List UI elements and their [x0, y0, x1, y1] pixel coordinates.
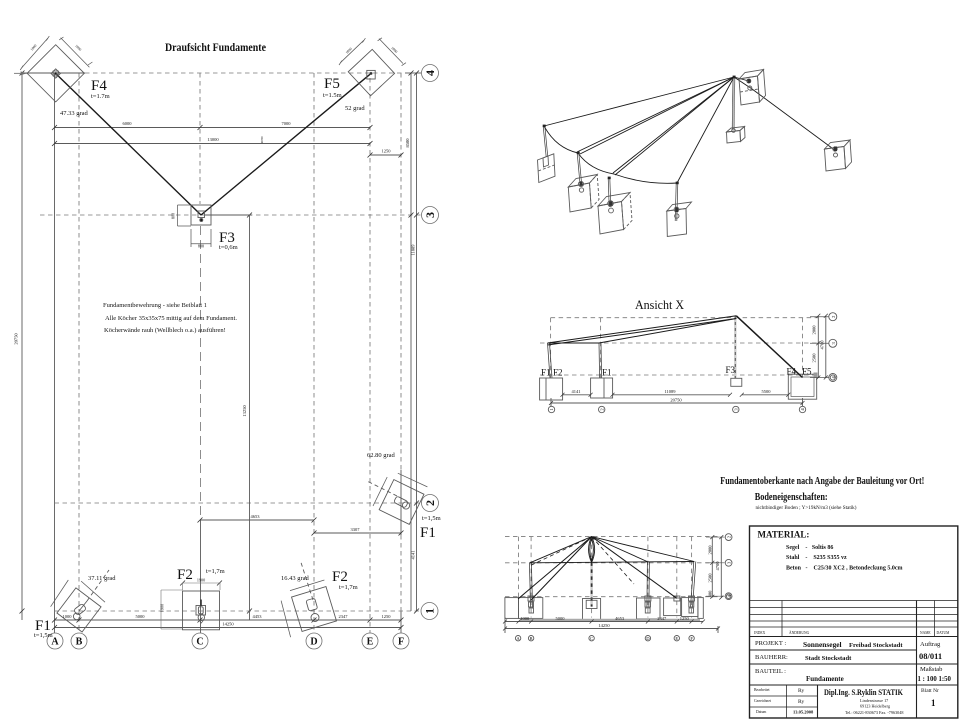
- svg-text:16.43 grad: 16.43 grad: [281, 575, 310, 582]
- svg-text:3: 3: [423, 212, 437, 218]
- svg-text:11089: 11089: [664, 389, 676, 394]
- svg-text:Stadt Stockstadt: Stadt Stockstadt: [805, 655, 852, 662]
- svg-text:DATUM: DATUM: [937, 631, 951, 635]
- svg-text:1250: 1250: [680, 616, 690, 621]
- svg-text:F4: F4: [787, 367, 797, 377]
- svg-text:4: 4: [423, 70, 437, 76]
- svg-text:1 : 100 1:50: 1 : 100 1:50: [918, 676, 952, 683]
- svg-text:Fundamentoberkante nach Angabe: Fundamentoberkante nach Angabe der Baule…: [720, 476, 924, 487]
- svg-text:4700: 4700: [715, 561, 720, 571]
- svg-text:Fundamentbewehrung - siehe Be: Fundamentbewehrung - siehe Beiblatt 1: [103, 302, 207, 309]
- svg-text:E: E: [367, 637, 374, 648]
- svg-text:4141: 4141: [411, 551, 416, 560]
- svg-text:F2: F2: [332, 569, 348, 585]
- svg-text:t=1,7m: t=1,7m: [206, 568, 225, 575]
- svg-text:4653: 4653: [615, 616, 625, 621]
- svg-text:4700: 4700: [820, 340, 825, 350]
- svg-text:800: 800: [198, 244, 204, 249]
- svg-text:INDEX: INDEX: [754, 631, 766, 635]
- svg-text:BAUHERR:: BAUHERR:: [755, 654, 788, 661]
- svg-text:t=1,5m: t=1,5m: [34, 632, 53, 639]
- svg-text:E: E: [675, 636, 678, 641]
- svg-text:nichtbindiger Boden ; Y>19kN/m: nichtbindiger Boden ; Y>19kN/m3 (siehe S…: [756, 504, 857, 511]
- svg-text:Tel.: 06221-830673 Fax. -796: Tel.: 06221-830673 Fax. -7963048: [845, 710, 903, 715]
- svg-text:C: C: [590, 636, 593, 641]
- svg-text:Ansicht X: Ansicht X: [635, 298, 684, 312]
- svg-text:800: 800: [171, 213, 176, 219]
- svg-text:1250: 1250: [382, 149, 392, 154]
- svg-text:Stahl - S235 S355 vz: Stahl - S235 S355 vz: [786, 555, 847, 561]
- svg-text:B: B: [530, 636, 533, 641]
- svg-text:Köcherwände rauh (Wellblech o.: Köcherwände rauh (Wellblech o.a.) ausfüh…: [104, 327, 226, 334]
- svg-text:Draufsicht Fundamente: Draufsicht Fundamente: [165, 42, 266, 54]
- svg-text:t=1.7m: t=1.7m: [91, 93, 110, 100]
- svg-text:Datum: Datum: [756, 710, 766, 714]
- svg-text:Freibad Stockstadt: Freibad Stockstadt: [849, 642, 903, 649]
- svg-text:Dipl.Ing. S.Ryklin STATIK: Dipl.Ing. S.Ryklin STATIK: [824, 687, 903, 697]
- svg-text:Beton - C25/30 XC2 , Beto: Beton - C25/30 XC2 , Betondeckung 5.0cm: [786, 566, 903, 572]
- svg-text:5000: 5000: [136, 614, 146, 619]
- svg-text:1900: 1900: [197, 578, 205, 583]
- svg-text:Sonnensegel: Sonnensegel: [803, 640, 842, 649]
- svg-text:2347: 2347: [657, 616, 667, 621]
- svg-text:Lindenstrasse 17: Lindenstrasse 17: [860, 698, 888, 703]
- svg-text:Alle Köcher 35x35x75 mittig au: Alle Köcher 35x35x75 mittig auf dem Fund…: [105, 315, 237, 322]
- svg-text:Auftrag: Auftrag: [920, 641, 941, 648]
- svg-text:37.11 grad: 37.11 grad: [88, 575, 116, 582]
- svg-text:14250: 14250: [222, 622, 234, 627]
- svg-text:11889: 11889: [411, 244, 416, 256]
- svg-text:Fundamente: Fundamente: [806, 675, 844, 683]
- svg-text:Blatt Nr: Blatt Nr: [921, 688, 939, 694]
- svg-text:C: C: [196, 637, 203, 648]
- svg-text:2: 2: [423, 500, 437, 506]
- svg-text:Gezeichnet: Gezeichnet: [754, 699, 772, 703]
- svg-text:47.33 grad: 47.33 grad: [60, 110, 89, 117]
- svg-text:14250: 14250: [598, 623, 610, 628]
- svg-text:400: 400: [708, 590, 713, 598]
- svg-text:1250: 1250: [382, 614, 392, 619]
- svg-text:B: B: [76, 637, 83, 648]
- svg-text:52 grad: 52 grad: [345, 105, 365, 112]
- svg-text:Maßstab: Maßstab: [920, 666, 942, 673]
- svg-text:F1: F1: [602, 368, 612, 378]
- svg-text:20750: 20750: [670, 398, 682, 403]
- svg-text:6000: 6000: [123, 121, 133, 126]
- svg-text:PROJEKT :: PROJEKT :: [755, 640, 786, 647]
- svg-text:2500: 2500: [708, 573, 713, 583]
- svg-text:F1: F1: [541, 368, 551, 378]
- svg-text:1900: 1900: [160, 604, 165, 612]
- svg-text:13000: 13000: [207, 137, 219, 142]
- svg-text:13250: 13250: [242, 405, 247, 417]
- svg-text:62.80 grad: 62.80 grad: [367, 452, 396, 459]
- svg-text:Segel - Soltis 86: Segel - Soltis 86: [786, 545, 833, 551]
- svg-text:1000: 1000: [63, 614, 73, 619]
- svg-text:1080: 1080: [260, 136, 264, 143]
- svg-text:5500: 5500: [762, 389, 772, 394]
- svg-text:D: D: [310, 637, 317, 648]
- svg-text:20750: 20750: [14, 333, 19, 345]
- svg-text:1000: 1000: [520, 616, 530, 621]
- svg-text:t=0,6m: t=0,6m: [219, 244, 238, 251]
- svg-text:3307: 3307: [351, 527, 361, 532]
- svg-text:F5: F5: [802, 367, 812, 377]
- svg-text:Bodeneigenschaften:: Bodeneigenschaften:: [755, 492, 828, 503]
- svg-text:13.05.2008: 13.05.2008: [793, 710, 814, 715]
- svg-text:t=1,5m: t=1,5m: [422, 515, 441, 522]
- svg-text:Ry: Ry: [798, 699, 804, 705]
- svg-text:BAUTEIL :: BAUTEIL :: [755, 668, 786, 675]
- svg-text:F2: F2: [553, 368, 563, 378]
- svg-text:7000: 7000: [282, 121, 292, 126]
- svg-text:8500: 8500: [405, 138, 410, 148]
- svg-text:F5: F5: [324, 76, 340, 92]
- svg-text:MATERIAL:: MATERIAL:: [758, 530, 810, 540]
- svg-text:1: 1: [423, 608, 437, 614]
- svg-text:2000: 2000: [708, 545, 713, 555]
- svg-text:2347: 2347: [339, 614, 349, 619]
- svg-text:Ry: Ry: [798, 688, 804, 694]
- svg-text:5000: 5000: [556, 616, 566, 621]
- svg-text:4653: 4653: [251, 514, 261, 519]
- svg-text:t=1,7m: t=1,7m: [339, 584, 358, 591]
- svg-text:08/011: 08/011: [919, 651, 942, 661]
- svg-text:F3: F3: [726, 365, 736, 375]
- svg-text:F: F: [690, 636, 693, 641]
- svg-text:Bearbeitet: Bearbeitet: [754, 688, 771, 692]
- svg-text:4453: 4453: [253, 614, 263, 619]
- svg-text:F: F: [398, 637, 404, 648]
- svg-text:4141: 4141: [572, 389, 581, 394]
- svg-text:ÄNDERUNG: ÄNDERUNG: [789, 630, 810, 635]
- svg-text:NAME: NAME: [920, 631, 931, 635]
- svg-text:F2: F2: [177, 567, 193, 583]
- svg-text:2500: 2500: [812, 353, 817, 363]
- svg-text:F4: F4: [91, 78, 107, 94]
- svg-text:69123 Heidelberg: 69123 Heidelberg: [860, 704, 891, 709]
- svg-text:1: 1: [931, 698, 936, 708]
- svg-text:t=1.5m: t=1.5m: [323, 92, 342, 99]
- svg-text:2000: 2000: [812, 325, 817, 335]
- svg-text:F1: F1: [420, 525, 436, 541]
